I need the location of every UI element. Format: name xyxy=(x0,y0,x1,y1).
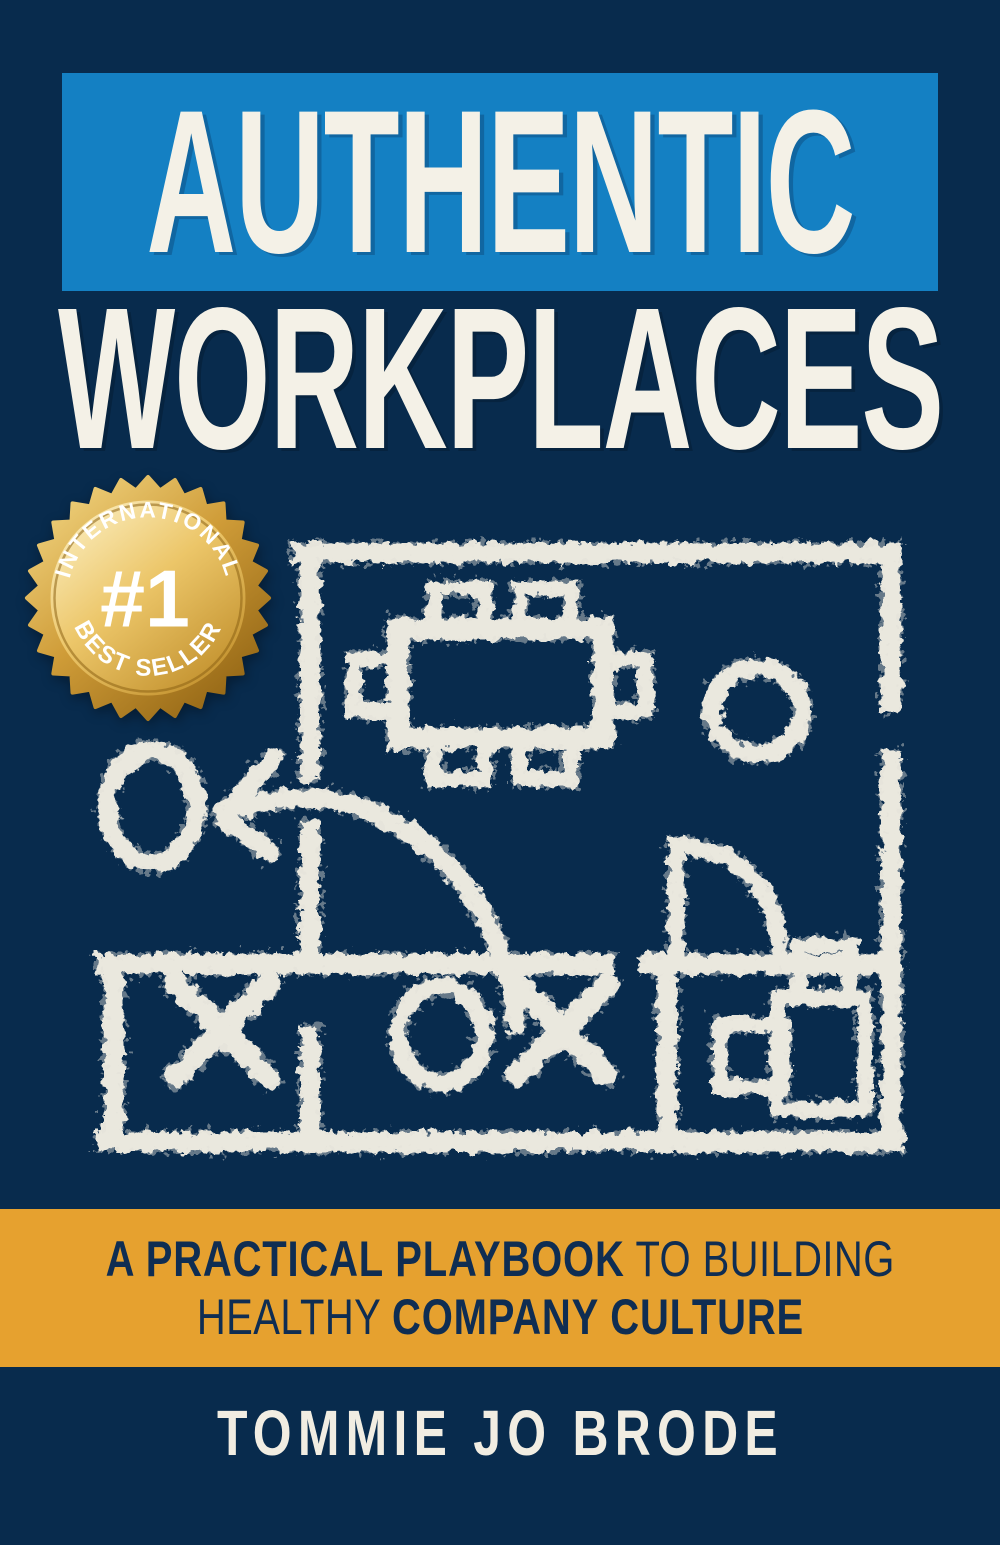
title-banner: AUTHENTIC xyxy=(62,73,938,291)
subtitle-line1-light: TO BUILDING xyxy=(624,1231,894,1287)
book-cover: AUTHENTIC WORKPLACES INTERNATIONAL #1 xyxy=(0,0,1000,1545)
title-row: WORKPLACES xyxy=(0,290,1000,466)
author-row: TOMMIE JO BRODE xyxy=(0,1398,1000,1468)
title-word-workplaces: WORKPLACES xyxy=(58,277,943,479)
subtitle-band: A PRACTICAL PLAYBOOK TO BUILDING HEALTHY… xyxy=(0,1209,1000,1367)
subtitle-line2-light: HEALTHY xyxy=(196,1289,391,1345)
author-name: TOMMIE JO BRODE xyxy=(217,1401,784,1465)
subtitle-line-2: HEALTHY COMPANY CULTURE xyxy=(196,1291,803,1343)
title-word-authentic: AUTHENTIC xyxy=(146,80,854,284)
badge-rank-text: #1 xyxy=(100,555,190,645)
bestseller-badge: INTERNATIONAL #1 BEST SELLER xyxy=(22,472,274,724)
subtitle-line2-strong: COMPANY CULTURE xyxy=(392,1289,804,1345)
subtitle-line-1: A PRACTICAL PLAYBOOK TO BUILDING xyxy=(105,1233,894,1285)
subtitle-line1-strong: A PRACTICAL PLAYBOOK xyxy=(105,1231,624,1287)
